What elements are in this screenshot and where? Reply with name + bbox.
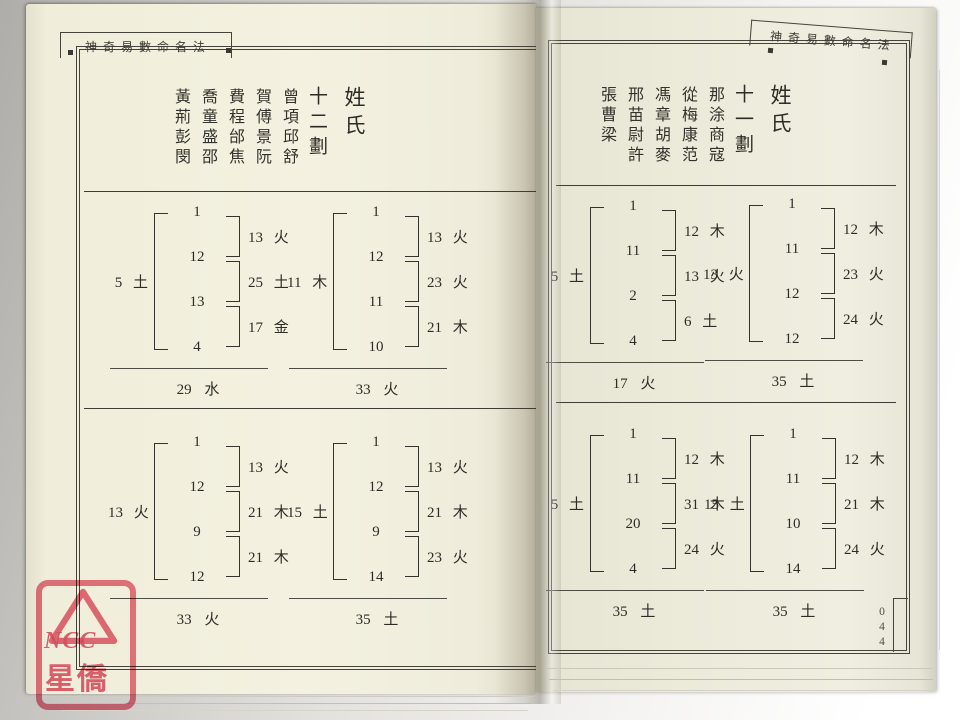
total-label: 29 水 xyxy=(128,378,268,399)
page-subtitle: 十二劃 xyxy=(307,86,326,161)
stroke-number: 12 xyxy=(174,249,220,266)
grid-label: 12 木 xyxy=(844,448,890,469)
grid-label: 13 火 xyxy=(427,456,473,477)
outer-grid-label: 5 土 xyxy=(544,493,584,514)
surname-column: 黃荊彭閔 xyxy=(172,88,188,168)
outer-grid-label: 5 土 xyxy=(544,265,584,286)
corner-square-icon xyxy=(226,48,231,53)
outer-grid-label: 13 火 xyxy=(108,501,148,522)
stroke-number: 11 xyxy=(610,471,656,488)
total-label: 33 火 xyxy=(307,378,447,399)
grid-label: 23 火 xyxy=(843,263,889,284)
stroke-number: 12 xyxy=(769,286,815,303)
stroke-number: 1 xyxy=(769,196,815,213)
left-bracket xyxy=(333,213,347,350)
right-bracket xyxy=(405,306,419,347)
total-rule xyxy=(705,360,863,361)
surname-column: 張曹梁 xyxy=(598,86,614,146)
surname-column: 費程邰焦 xyxy=(226,88,242,168)
outer-grid-label: 5 土 xyxy=(108,271,148,292)
surname-column: 從梅康范 xyxy=(679,86,695,166)
grid-label: 24 火 xyxy=(843,308,889,329)
corner-square-icon xyxy=(768,48,773,53)
total-label: 17 火 xyxy=(564,372,704,393)
stroke-number: 13 xyxy=(174,294,220,311)
left-bracket xyxy=(154,443,168,580)
right-bracket xyxy=(662,210,676,251)
outer-grid-label: 15 土 xyxy=(704,493,744,514)
five-grid-diagram: 5 土11120412 木31 木24 火35 土 xyxy=(544,424,730,620)
book-title: 神奇易數命名法 xyxy=(85,40,211,54)
stroke-number: 12 xyxy=(353,479,399,496)
stroke-number: 11 xyxy=(353,294,399,311)
page-edge xyxy=(549,679,933,680)
left-bracket xyxy=(749,205,763,342)
right-bracket xyxy=(822,528,836,569)
right-bracket xyxy=(662,300,676,341)
stroke-number: 14 xyxy=(353,569,399,586)
five-grid-diagram: 5 土11213413 火25 土17 金29 水 xyxy=(108,202,294,398)
grid-label: 13 火 xyxy=(427,226,473,247)
grid-label: 12 木 xyxy=(843,218,889,239)
watermark-text-ncc: NCC xyxy=(44,628,96,655)
total-rule xyxy=(706,590,864,591)
stroke-number: 1 xyxy=(610,198,656,215)
stroke-number: 12 xyxy=(769,331,815,348)
page-edge xyxy=(545,668,933,669)
page-number: 044 xyxy=(876,606,888,651)
right-bracket xyxy=(405,261,419,302)
surname-column: 曾項邱舒 xyxy=(280,88,296,168)
grid-label: 24 火 xyxy=(844,538,890,559)
stroke-number: 4 xyxy=(610,561,656,578)
right-bracket xyxy=(226,216,240,257)
stroke-number: 20 xyxy=(610,516,656,533)
right-bracket xyxy=(662,255,676,296)
grid-label: 21 木 xyxy=(844,493,890,514)
watermark-stamp: NCC 星僑 xyxy=(36,580,136,710)
stroke-number: 1 xyxy=(353,204,399,221)
total-label: 35 土 xyxy=(724,600,864,621)
page-edge xyxy=(62,710,528,711)
right-bracket xyxy=(405,446,419,487)
stroke-number: 1 xyxy=(610,426,656,443)
outer-grid-label: 15 土 xyxy=(287,501,327,522)
page-edge xyxy=(553,690,932,691)
surname-column: 邢苗尉許 xyxy=(625,86,641,166)
total-label: 35 土 xyxy=(723,370,863,391)
right-bracket xyxy=(662,483,676,524)
section-rule xyxy=(84,191,536,192)
stroke-number: 1 xyxy=(770,426,816,443)
title-block: 姓氏 十一劃 那涂商寇 從梅康范 馮章胡麥 邢苗尉許 張曹梁 xyxy=(598,84,790,166)
stroke-number: 12 xyxy=(174,479,220,496)
right-bracket xyxy=(821,298,835,339)
surname-column: 馮章胡麥 xyxy=(652,86,668,166)
total-rule xyxy=(289,368,447,369)
page-edge xyxy=(935,50,936,660)
corner-square-icon xyxy=(68,50,73,55)
surname-column: 賀傅景阮 xyxy=(253,88,269,168)
grid-label: 23 火 xyxy=(427,271,473,292)
total-label: 35 土 xyxy=(564,600,704,621)
right-bracket xyxy=(405,491,419,532)
right-bracket xyxy=(662,438,676,479)
corner-square-icon xyxy=(882,60,887,65)
outer-grid-label: 13 火 xyxy=(703,263,743,284)
total-rule xyxy=(546,590,704,591)
stroke-number: 11 xyxy=(770,471,816,488)
stroke-number: 12 xyxy=(353,249,399,266)
five-grid-diagram: 13 火111121212 木23 火24 火35 土 xyxy=(703,194,889,390)
page-title: 姓氏 xyxy=(769,84,790,140)
title-block: 姓氏 十二劃 曾項邱舒 賀傅景阮 費程邰焦 喬童盛邵 黃荊彭閔 xyxy=(172,86,364,168)
stroke-number: 1 xyxy=(353,434,399,451)
left-bracket xyxy=(154,213,168,350)
stroke-number: 11 xyxy=(610,243,656,260)
grid-label: 21 木 xyxy=(427,316,473,337)
right-bracket xyxy=(226,491,240,532)
left-bracket xyxy=(590,207,604,344)
right-bracket xyxy=(226,446,240,487)
stroke-number: 1 xyxy=(174,434,220,451)
grid-label: 23 火 xyxy=(427,546,473,567)
right-bracket xyxy=(662,528,676,569)
five-grid-diagram: 15 土111101412 木21 木24 火35 土 xyxy=(704,424,890,620)
section-rule xyxy=(84,408,536,409)
total-label: 35 土 xyxy=(307,608,447,629)
right-page: 神奇易數命名法 姓氏 十一劃 那涂商寇 從梅康范 馮章胡麥 邢苗尉許 張曹梁 5… xyxy=(536,8,936,692)
watermark-text-xingqiao: 星僑 xyxy=(45,654,109,698)
right-bracket xyxy=(822,438,836,479)
book-spread-photo: 神奇易數命名法 姓氏 十二劃 曾項邱舒 賀傅景阮 費程邰焦 喬童盛邵 黃荊彭閔 … xyxy=(0,0,960,720)
stroke-number: 14 xyxy=(770,561,816,578)
right-bracket xyxy=(226,306,240,347)
stroke-number: 11 xyxy=(769,241,815,258)
section-rule xyxy=(556,402,896,403)
frame-notch xyxy=(893,598,894,652)
page-title: 姓氏 xyxy=(343,86,364,142)
right-bracket xyxy=(226,536,240,577)
left-bracket xyxy=(750,435,764,572)
total-rule xyxy=(546,362,704,363)
surname-column: 喬童盛邵 xyxy=(199,88,215,168)
header-title-tab: 神奇易數命名法 xyxy=(60,32,232,58)
page-edge xyxy=(939,70,940,650)
right-bracket xyxy=(226,261,240,302)
total-label: 33 火 xyxy=(128,608,268,629)
stroke-number: 10 xyxy=(353,339,399,356)
stroke-number: 12 xyxy=(174,569,220,586)
total-rule xyxy=(110,368,268,369)
right-bracket xyxy=(821,208,835,249)
stroke-number: 4 xyxy=(610,333,656,350)
stroke-number: 1 xyxy=(174,204,220,221)
stroke-number: 10 xyxy=(770,516,816,533)
left-bracket xyxy=(590,435,604,572)
stroke-number: 9 xyxy=(353,524,399,541)
stroke-number: 2 xyxy=(610,288,656,305)
right-bracket xyxy=(821,253,835,294)
outer-grid-label: 11 木 xyxy=(287,271,327,292)
right-bracket xyxy=(405,536,419,577)
left-bracket xyxy=(333,443,347,580)
five-grid-diagram: 11 木112111013 火23 火21 木33 火 xyxy=(287,202,473,398)
page-subtitle: 十一劃 xyxy=(733,84,752,159)
five-grid-diagram: 15 土11291413 火21 木23 火35 土 xyxy=(287,432,473,628)
grid-label: 21 木 xyxy=(427,501,473,522)
stroke-number: 4 xyxy=(174,339,220,356)
surname-column: 那涂商寇 xyxy=(706,86,722,166)
right-bracket xyxy=(405,216,419,257)
section-rule xyxy=(556,185,896,186)
right-bracket xyxy=(822,483,836,524)
stroke-number: 9 xyxy=(174,524,220,541)
total-rule xyxy=(289,598,447,599)
frame-notch xyxy=(893,598,908,599)
